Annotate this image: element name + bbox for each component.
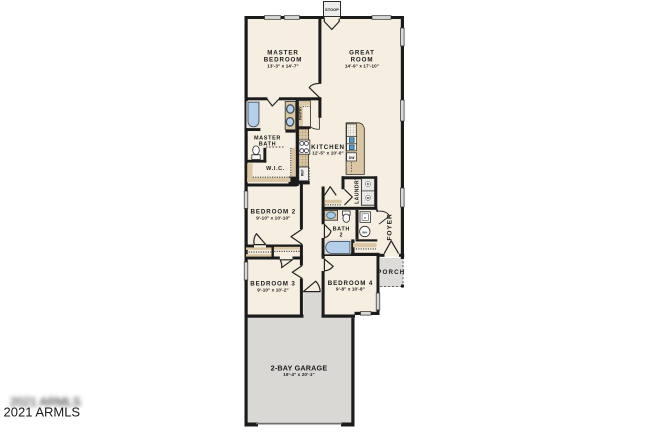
svg-text:13'-3" x 14'-7": 13'-3" x 14'-7" bbox=[267, 63, 299, 68]
svg-text:BATH: BATH bbox=[333, 226, 350, 232]
svg-text:12'-5" x 10'-0": 12'-5" x 10'-0" bbox=[312, 151, 344, 156]
svg-text:W.I.C.: W.I.C. bbox=[266, 166, 285, 172]
svg-text:BATH: BATH bbox=[259, 142, 276, 148]
svg-text:BEDROOM 2: BEDROOM 2 bbox=[251, 209, 297, 216]
svg-text:MASTER: MASTER bbox=[254, 135, 281, 141]
svg-text:PANTRY: PANTRY bbox=[298, 106, 302, 120]
svg-text:DW: DW bbox=[349, 156, 355, 160]
svg-text:9'-10" x 10'-2": 9'-10" x 10'-2" bbox=[257, 287, 289, 292]
svg-text:14'-9" x 17'-10": 14'-9" x 17'-10" bbox=[345, 63, 379, 68]
svg-text:REF: REF bbox=[301, 169, 305, 176]
svg-text:9'-8" x 10'-8": 9'-8" x 10'-8" bbox=[336, 287, 365, 292]
svg-text:GREAT: GREAT bbox=[349, 50, 375, 57]
svg-text:W: W bbox=[367, 196, 370, 200]
svg-text:19'-4" x 20'-1": 19'-4" x 20'-1" bbox=[283, 372, 315, 377]
svg-text:2021 ARMLS: 2021 ARMLS bbox=[4, 405, 81, 420]
svg-text:9'-10" x 10'-10": 9'-10" x 10'-10" bbox=[256, 216, 290, 221]
svg-text:FOYER: FOYER bbox=[387, 213, 394, 240]
svg-text:STOOP: STOOP bbox=[325, 7, 339, 12]
svg-text:LAUNDRY: LAUNDRY bbox=[355, 176, 361, 204]
svg-text:PORCH: PORCH bbox=[377, 269, 405, 276]
svg-text:MASTER: MASTER bbox=[267, 50, 299, 57]
svg-text:WH: WH bbox=[362, 230, 367, 234]
svg-text:F: F bbox=[364, 216, 366, 220]
svg-text:2: 2 bbox=[339, 233, 343, 239]
